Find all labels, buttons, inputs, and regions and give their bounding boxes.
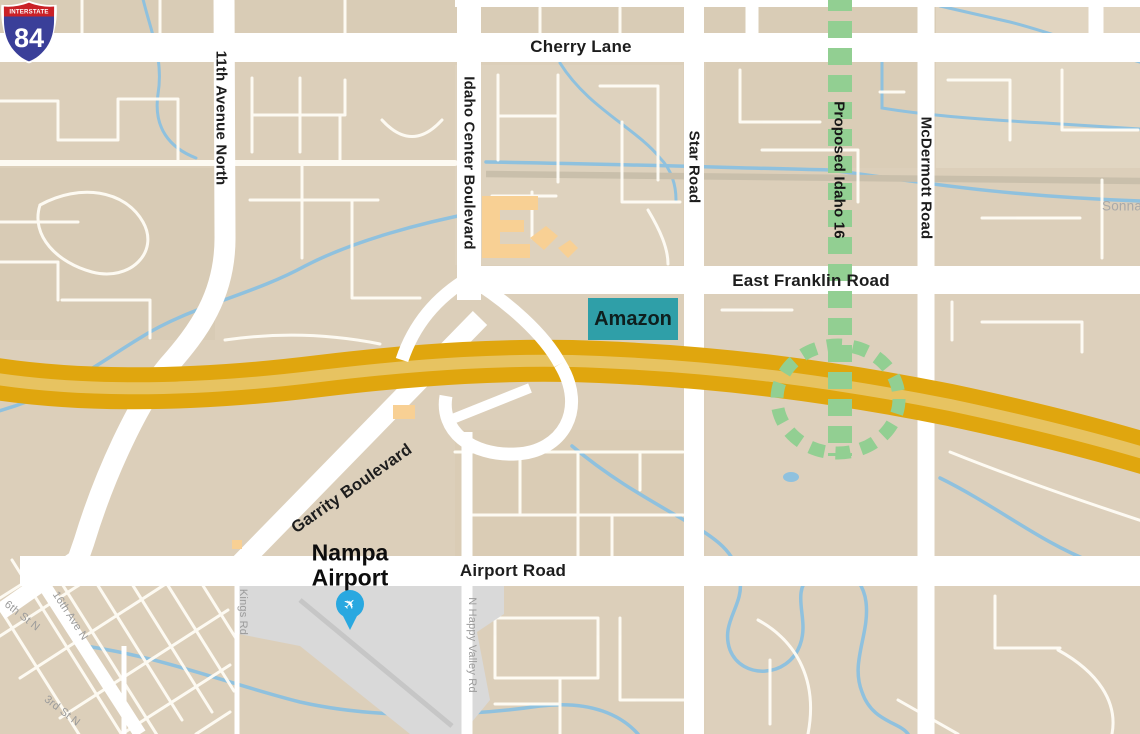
amazon-marker: Amazon — [588, 298, 678, 340]
east-franklin-road-label: East Franklin Road — [732, 271, 890, 291]
pond — [783, 472, 799, 482]
star-road-label: Star Road — [686, 131, 703, 204]
map-base-graphics — [0, 0, 1140, 734]
interstate-84-shield-icon: INTERSTATE 84 — [0, 0, 58, 64]
eleventh-avenue-north-label: 11th Avenue North — [213, 51, 230, 186]
nampa-airport-label-line1: Nampa — [312, 541, 389, 566]
airplane-icon: ✈ — [340, 594, 360, 614]
sonna-road-label: Sonna — [1102, 199, 1140, 214]
airport-road-label: Airport Road — [460, 561, 566, 581]
mcdermott-road-label: McDermott Road — [918, 117, 935, 240]
shield-interstate-text: INTERSTATE — [9, 8, 48, 15]
n-happy-valley-road-label: N Happy Valley Rd — [466, 597, 478, 693]
cherry-lane-label: Cherry Lane — [530, 37, 631, 57]
nampa-area-map: Cherry Lane 11th Avenue North Idaho Cent… — [0, 0, 1140, 734]
idaho-center-boulevard-label: Idaho Center Boulevard — [461, 76, 478, 250]
airport-road — [20, 556, 1140, 586]
proposed-idaho-16-label: Proposed Idaho 16 — [831, 101, 848, 239]
nampa-airport-label-line2: Airport — [312, 566, 389, 591]
pin-tail — [343, 616, 357, 630]
shield-route-number: 84 — [14, 23, 44, 53]
pin-ball: ✈ — [336, 590, 364, 618]
amazon-marker-label: Amazon — [594, 308, 672, 331]
nampa-airport-label: Nampa Airport — [312, 541, 389, 592]
kings-road-label: Kings Rd — [237, 589, 249, 635]
airport-pin: ✈ — [336, 590, 364, 631]
